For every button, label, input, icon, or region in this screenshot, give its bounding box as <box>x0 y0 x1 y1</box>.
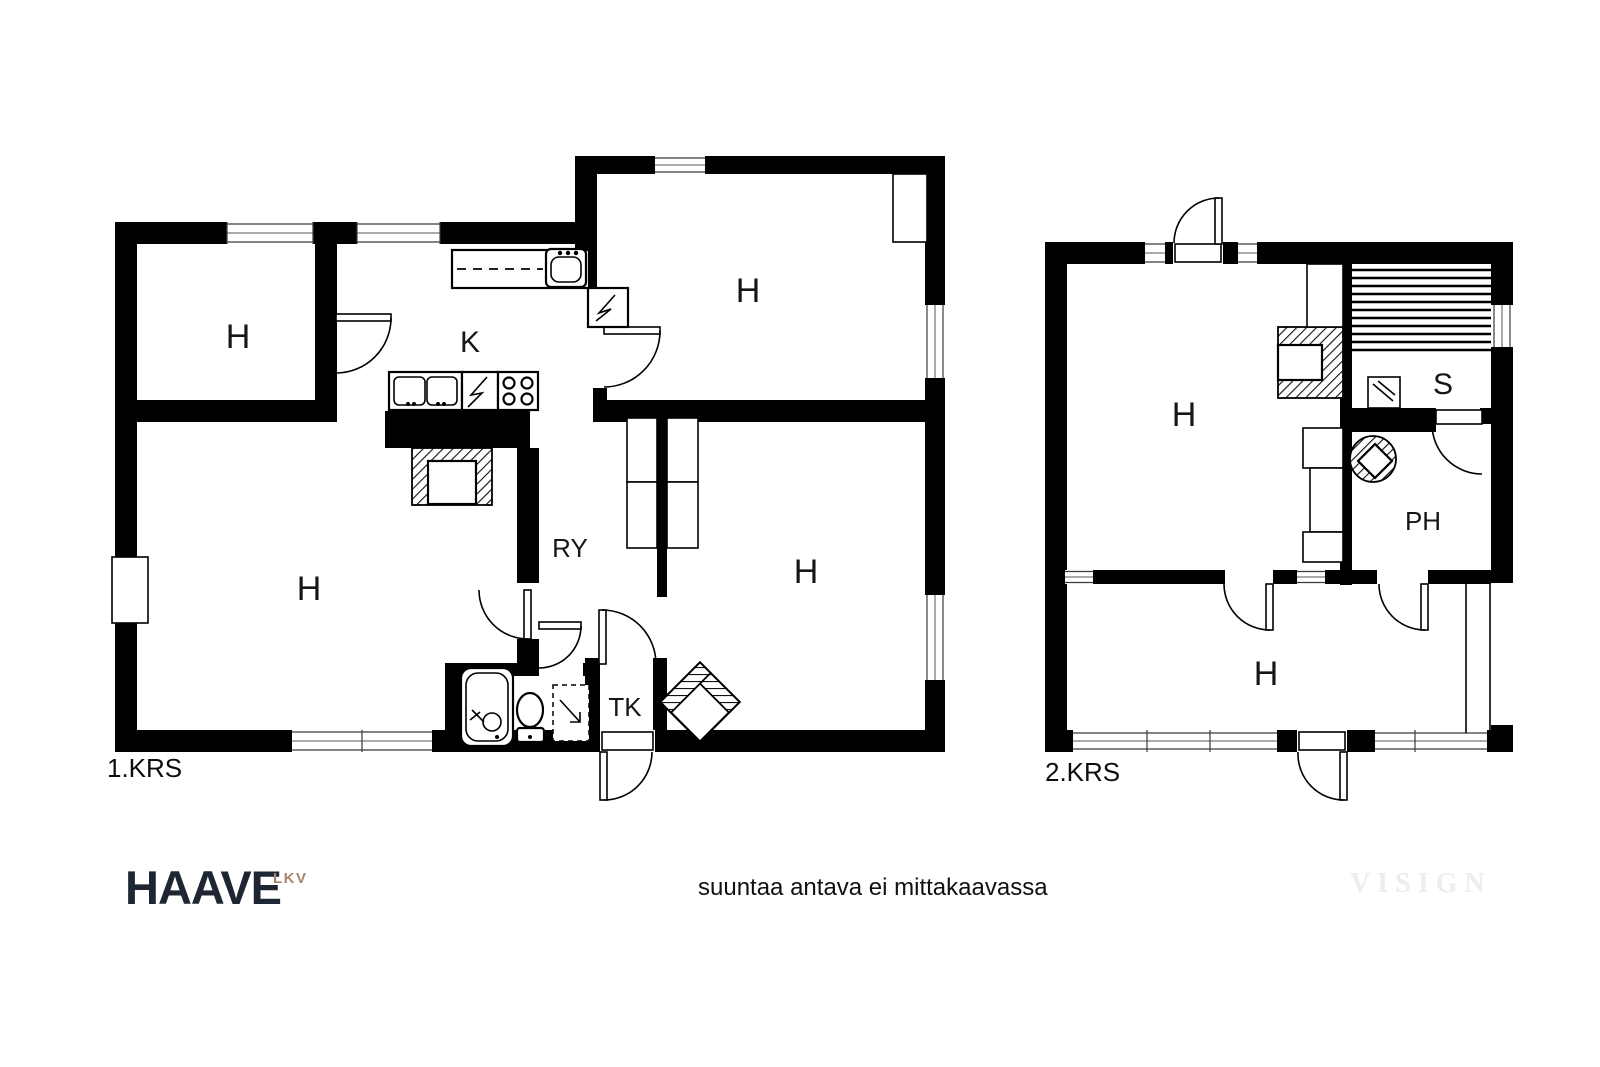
terrace-boundary <box>1466 584 1490 733</box>
entrance-door <box>600 730 655 800</box>
brand-logo: HAAVE <box>125 864 281 911</box>
floor2-label: 2.KRS <box>1045 757 1120 787</box>
room-label: H <box>794 553 819 591</box>
window <box>655 156 705 174</box>
bathtub <box>461 668 513 746</box>
floor1-walls <box>115 156 945 752</box>
room-label: H <box>1254 655 1279 693</box>
floor1-label: 1.KRS <box>107 753 182 783</box>
room-label: S <box>1433 368 1453 401</box>
room-label: K <box>460 326 480 359</box>
window-bay <box>112 557 148 623</box>
door <box>1224 584 1273 630</box>
fireplace <box>1278 327 1343 398</box>
room-label: H <box>736 272 761 310</box>
floor1-plan: H K H H RY H TK 1.KRS <box>107 156 945 800</box>
fridge <box>389 372 462 410</box>
entrance-door <box>1297 730 1347 800</box>
door <box>599 610 656 664</box>
window <box>1145 242 1165 264</box>
staircase <box>1303 428 1343 562</box>
window <box>1238 242 1257 264</box>
closet <box>893 174 927 242</box>
room-label: RY <box>552 533 588 563</box>
sauna-benches <box>1352 270 1491 350</box>
watermark-text: VISIGN <box>1350 868 1492 900</box>
fireplace <box>412 448 492 505</box>
stove <box>462 372 498 410</box>
floorplan-page: H K H H RY H TK 1.KRS <box>0 0 1600 1067</box>
window <box>1065 570 1093 584</box>
door <box>539 622 581 668</box>
closet <box>1307 264 1343 327</box>
sauna-door <box>1432 410 1482 474</box>
window <box>1491 305 1513 347</box>
window <box>227 222 313 244</box>
floor2-plan: H S PH H 2.KRS <box>1045 198 1513 800</box>
sauna-stove <box>1350 436 1396 482</box>
window <box>292 730 432 752</box>
armchair <box>660 662 739 741</box>
room-label: PH <box>1405 506 1441 536</box>
room-label: H <box>226 318 251 356</box>
water-heater <box>588 288 628 327</box>
shower-glass <box>1368 377 1400 408</box>
room-label: H <box>297 570 322 608</box>
kitchen-counter <box>452 249 589 288</box>
window <box>925 305 945 378</box>
window <box>1375 730 1487 752</box>
door <box>1379 584 1428 630</box>
window <box>925 595 945 680</box>
window <box>357 222 440 244</box>
door <box>336 314 391 373</box>
disclaimer-text: suuntaa antava ei mittakaavassa <box>698 874 1048 902</box>
room-label: H <box>1172 396 1197 434</box>
room-label: TK <box>608 692 642 722</box>
window <box>1297 570 1325 584</box>
window <box>1073 730 1277 752</box>
entrance-door <box>1173 198 1223 264</box>
toilet <box>517 693 544 742</box>
brand-logo-suffix: LKV <box>273 870 308 887</box>
cooktop <box>498 372 538 410</box>
floor2-fixtures <box>1278 264 1491 733</box>
door <box>479 590 531 639</box>
door <box>604 327 660 387</box>
